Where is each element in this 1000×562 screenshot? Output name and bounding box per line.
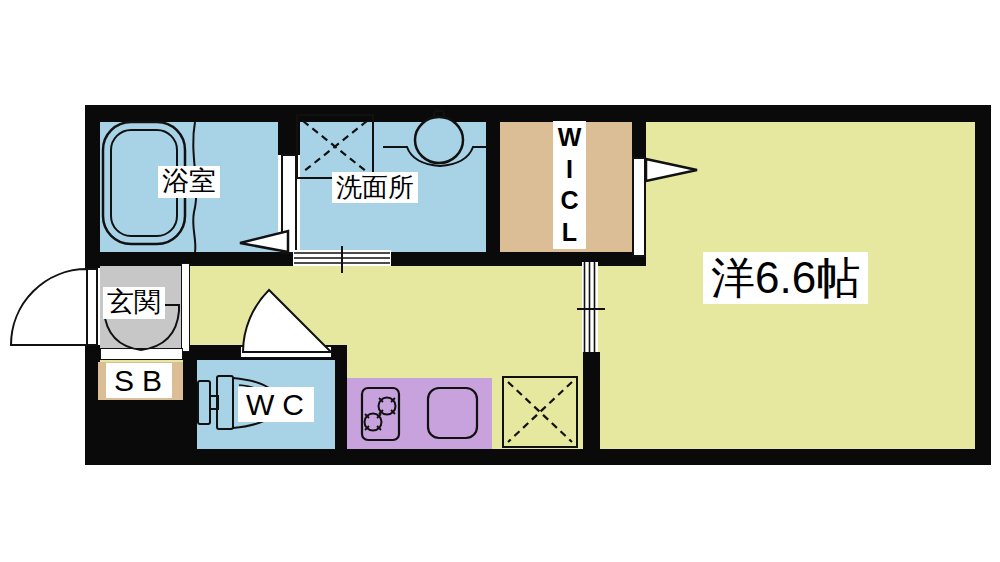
room-western-main-ext: [597, 262, 645, 449]
kitchen-counter-area: [347, 378, 492, 449]
wall-below-shoebox: [85, 400, 183, 465]
wicl-char-w: W: [558, 124, 582, 152]
wicl-char-c: C: [560, 187, 578, 215]
wall-right: [975, 105, 991, 465]
wall-washroom-wicl: [486, 105, 500, 266]
wicl-char-l: L: [562, 219, 577, 247]
entrance-label: 玄関: [103, 287, 165, 319]
wc-label: WC: [238, 387, 314, 422]
wicl-label: W I C L: [553, 121, 586, 249]
entrance-door-icon: [11, 269, 87, 345]
entrance-door-leaf: [85, 268, 98, 346]
shoebox-label: SB: [106, 363, 172, 398]
wall-top: [85, 105, 991, 122]
floor-plan: 浴室 洗面所 W I C L 洋6.6帖 玄関 SB WC: [0, 0, 1000, 562]
wall-bath-washroom: [278, 105, 300, 155]
shoebox-step-strip: [100, 348, 183, 360]
bathroom-label: 浴室: [158, 166, 220, 198]
washroom-sliding-door-opening: [293, 250, 391, 266]
wall-partition-lower: [583, 352, 600, 449]
western-room-label: 洋6.6帖: [703, 252, 868, 304]
wicl-door-jamb: [632, 157, 646, 257]
wall-wicl-right: [632, 105, 646, 158]
bathroom-door-jamb: [281, 154, 297, 254]
wc-door-leaf: [240, 346, 332, 358]
entrance-step-strip: [181, 263, 190, 352]
wall-left-upper: [85, 105, 100, 268]
wicl-char-i: I: [566, 156, 573, 184]
washroom-label: 洗面所: [332, 172, 418, 203]
room-sliding-door-opening: [582, 262, 598, 352]
